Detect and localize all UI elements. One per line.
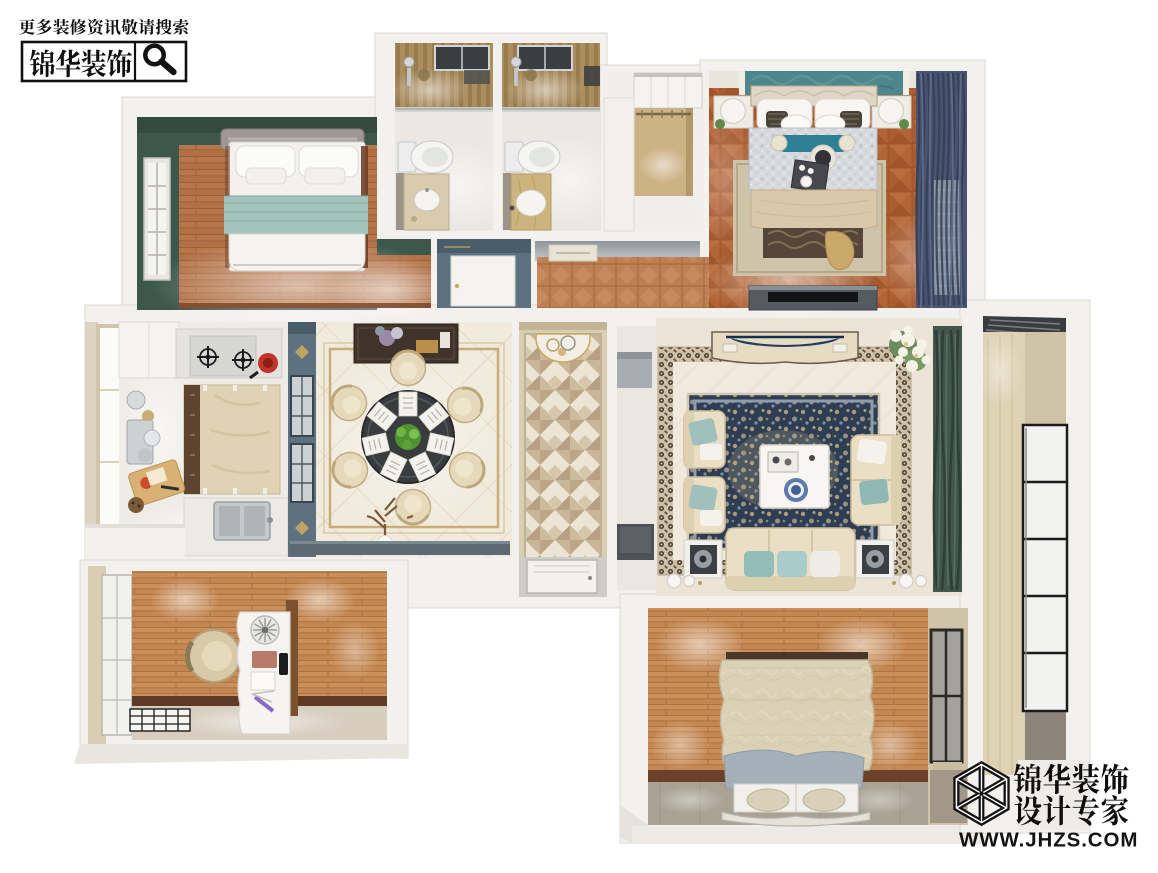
svg-text:WWW.JHZS.COM: WWW.JHZS.COM: [959, 829, 1138, 852]
